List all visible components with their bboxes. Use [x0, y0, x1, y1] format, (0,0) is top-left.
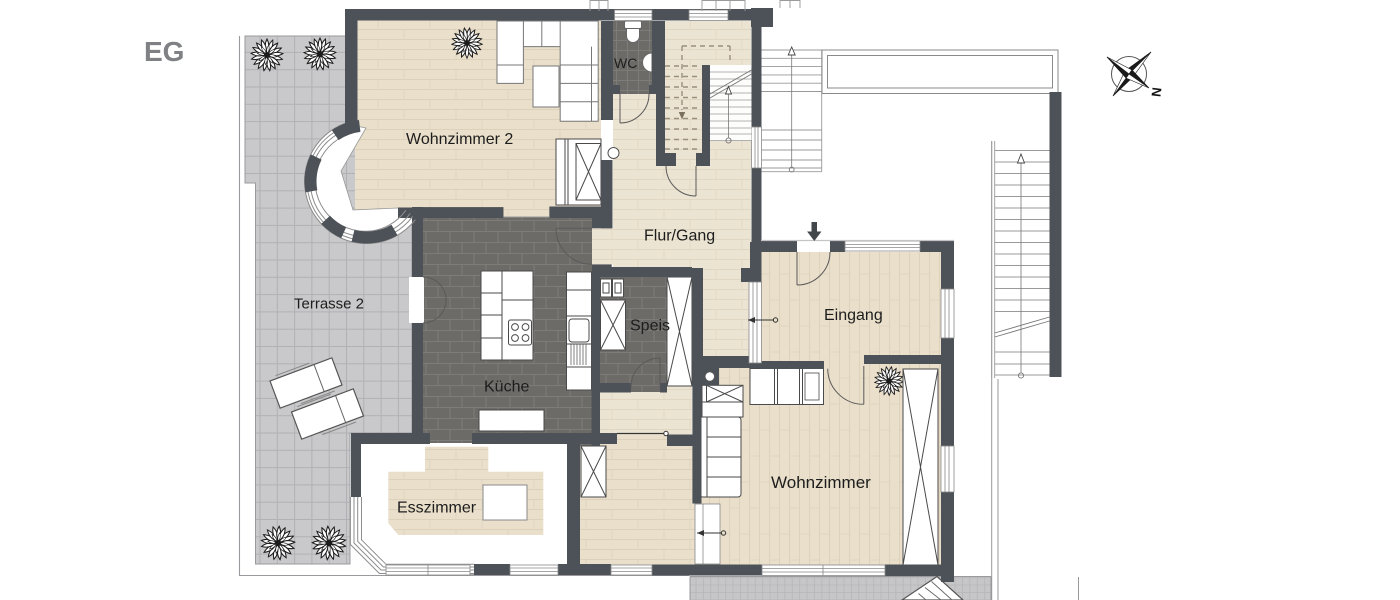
svg-text:Esszimmer: Esszimmer: [397, 500, 477, 517]
svg-text:Wohnzimmer 2: Wohnzimmer 2: [406, 131, 513, 148]
svg-text:Speis: Speis: [630, 318, 670, 335]
svg-text:Küche: Küche: [484, 379, 529, 396]
svg-text:Flur/Gang: Flur/Gang: [644, 228, 715, 245]
svg-text:Terrasse 2: Terrasse 2: [294, 296, 364, 313]
svg-text:N: N: [1149, 87, 1165, 98]
svg-text:Eingang: Eingang: [824, 307, 883, 324]
svg-text:Wohnzimmer: Wohnzimmer: [771, 473, 871, 492]
svg-text:EG: EG: [144, 36, 184, 67]
svg-text:WC: WC: [614, 55, 637, 71]
